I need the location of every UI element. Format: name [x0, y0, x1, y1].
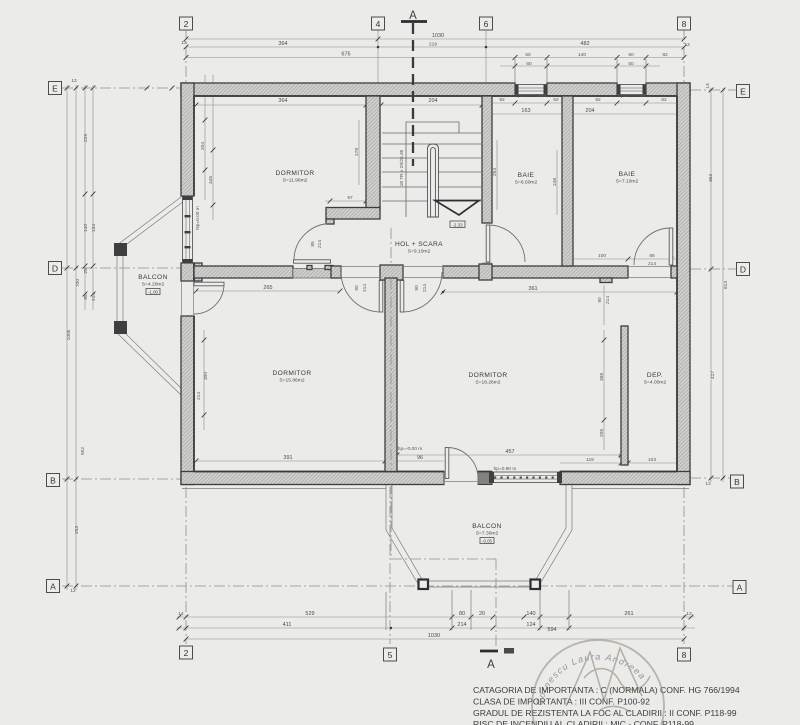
svg-text:552: 552 — [80, 447, 86, 455]
svg-text:S=15.86m2: S=15.86m2 — [279, 378, 304, 384]
svg-text:2: 2 — [184, 648, 189, 658]
svg-text:163: 163 — [521, 108, 530, 114]
svg-text:140: 140 — [578, 52, 586, 58]
svg-text:214: 214 — [422, 284, 428, 292]
svg-text:214: 214 — [196, 392, 202, 400]
svg-text:134: 134 — [91, 224, 97, 232]
svg-text:254: 254 — [492, 168, 498, 176]
svg-text:300: 300 — [203, 372, 209, 380]
svg-text:D: D — [740, 265, 746, 275]
svg-text:214: 214 — [362, 284, 368, 292]
svg-text:278: 278 — [354, 148, 360, 156]
svg-text:214: 214 — [317, 240, 323, 248]
svg-text:20: 20 — [479, 611, 485, 617]
svg-text:S=9.10m2: S=9.10m2 — [408, 249, 431, 255]
svg-text:1030: 1030 — [432, 33, 444, 39]
svg-text:A: A — [50, 582, 56, 592]
svg-text:BAIE: BAIE — [518, 172, 535, 179]
svg-text:A: A — [737, 583, 743, 593]
svg-text:-0.05: -0.05 — [482, 538, 492, 543]
svg-text:391: 391 — [283, 455, 292, 461]
svg-text:90: 90 — [597, 297, 603, 303]
svg-text:A: A — [487, 659, 495, 671]
svg-text:594: 594 — [547, 627, 556, 633]
svg-text:S=18.26m2: S=18.26m2 — [475, 380, 500, 386]
svg-text:364: 364 — [278, 98, 287, 104]
svg-text:13: 13 — [686, 611, 692, 617]
svg-text:8: 8 — [682, 19, 687, 29]
svg-text:S=6.60m2: S=6.60m2 — [515, 180, 538, 186]
svg-text:675: 675 — [341, 52, 350, 58]
svg-text:BALCON: BALCON — [472, 523, 502, 530]
svg-text:60: 60 — [628, 52, 634, 58]
svg-text:E: E — [52, 84, 58, 94]
svg-text:361: 361 — [528, 286, 537, 292]
svg-text:DORMITOR: DORMITOR — [276, 170, 315, 177]
svg-text:HOL + SCARA: HOL + SCARA — [395, 241, 443, 248]
svg-text:hp=-0.00 m: hp=-0.00 m — [398, 446, 422, 452]
svg-text:398: 398 — [599, 373, 605, 381]
svg-text:97: 97 — [347, 195, 353, 201]
svg-text:80: 80 — [459, 611, 465, 617]
svg-text:363: 363 — [708, 174, 714, 182]
svg-text:B: B — [734, 477, 740, 487]
svg-text:12: 12 — [70, 588, 76, 594]
svg-text:248: 248 — [552, 178, 558, 186]
svg-text:60: 60 — [526, 61, 532, 67]
svg-text:60: 60 — [628, 61, 634, 67]
svg-text:8: 8 — [682, 650, 687, 660]
svg-text:-1.00: -1.00 — [148, 289, 158, 294]
svg-text:14: 14 — [178, 611, 184, 617]
svg-text:D: D — [52, 264, 58, 274]
svg-text:140: 140 — [526, 611, 535, 617]
svg-text:214: 214 — [648, 261, 656, 267]
svg-text:6: 6 — [484, 19, 489, 29]
svg-text:96: 96 — [417, 455, 423, 461]
svg-text:529: 529 — [305, 611, 314, 617]
svg-text:2: 2 — [184, 19, 189, 29]
svg-text:18 TR x 29/26.35: 18 TR x 29/26.35 — [399, 149, 405, 186]
svg-text:85: 85 — [310, 241, 316, 247]
svg-text:482: 482 — [580, 41, 589, 47]
svg-text:204: 204 — [585, 108, 594, 114]
svg-text:BALCON: BALCON — [138, 274, 168, 281]
svg-text:85: 85 — [649, 253, 655, 259]
svg-text:13: 13 — [71, 78, 77, 84]
svg-text:1005: 1005 — [66, 329, 72, 340]
svg-text:Np=0.00 m: Np=0.00 m — [195, 206, 201, 230]
svg-text:1030: 1030 — [428, 633, 440, 639]
svg-text:813: 813 — [723, 281, 729, 289]
svg-text:457: 457 — [505, 449, 514, 455]
svg-text:S=4.00m2: S=4.00m2 — [644, 380, 667, 386]
svg-text:DEP.: DEP. — [647, 372, 663, 379]
svg-text:S=4.20m2: S=4.20m2 — [142, 282, 165, 288]
svg-text:219: 219 — [429, 42, 437, 48]
svg-text:62: 62 — [661, 97, 667, 103]
svg-text:E: E — [740, 87, 746, 97]
svg-text:13: 13 — [705, 83, 711, 89]
svg-text:82: 82 — [662, 52, 668, 58]
svg-text:B: B — [50, 476, 56, 486]
svg-text:82: 82 — [595, 97, 601, 103]
svg-text:BAIE: BAIE — [619, 171, 636, 178]
svg-text:13: 13 — [705, 481, 711, 487]
svg-text:hp=0.90 m: hp=0.90 m — [494, 466, 517, 472]
svg-text:204: 204 — [428, 98, 437, 104]
svg-text:214: 214 — [457, 622, 466, 628]
svg-text:4: 4 — [376, 19, 381, 29]
svg-text:229: 229 — [83, 134, 89, 142]
svg-text:CLASA DE IMPORTANTA : III CONF: CLASA DE IMPORTANTA : III CONF. P100-92 — [473, 697, 650, 707]
svg-text:13: 13 — [684, 42, 690, 48]
svg-text:5: 5 — [388, 650, 393, 660]
svg-text:700: 700 — [75, 279, 81, 287]
svg-text:DORMITOR: DORMITOR — [273, 370, 312, 377]
svg-text:124: 124 — [526, 622, 535, 628]
svg-text:253: 253 — [74, 526, 80, 534]
svg-text:DORMITOR: DORMITOR — [469, 372, 508, 379]
svg-text:S=7.30m2: S=7.30m2 — [476, 531, 499, 537]
svg-text:345: 345 — [208, 176, 214, 184]
svg-text:85: 85 — [83, 294, 89, 300]
svg-text:214: 214 — [605, 296, 611, 304]
svg-text:S=11.98m2: S=11.98m2 — [283, 178, 308, 184]
svg-text:90: 90 — [414, 285, 420, 291]
svg-text:S=7.10m2: S=7.10m2 — [616, 179, 639, 185]
svg-text:13: 13 — [181, 40, 187, 46]
svg-text:364: 364 — [278, 41, 287, 47]
svg-text:-2.33: -2.33 — [452, 222, 463, 227]
svg-text:25: 25 — [83, 268, 89, 274]
svg-text:204: 204 — [200, 142, 206, 150]
svg-text:411: 411 — [283, 622, 292, 628]
svg-text:100: 100 — [598, 253, 606, 259]
svg-text:119: 119 — [586, 457, 594, 463]
svg-text:52: 52 — [553, 97, 559, 103]
svg-text:GRADUL DE REZISTENTA LA FOC AL: GRADUL DE REZISTENTA LA FOC AL CLADIRII … — [473, 708, 737, 718]
svg-text:90: 90 — [354, 285, 360, 291]
svg-text:261: 261 — [624, 611, 633, 617]
svg-text:209: 209 — [599, 429, 605, 437]
svg-text:265: 265 — [263, 285, 272, 291]
svg-text:60: 60 — [525, 52, 531, 58]
svg-text:103: 103 — [648, 457, 656, 463]
svg-text:214: 214 — [91, 293, 97, 301]
svg-text:427: 427 — [710, 371, 716, 379]
svg-text:92: 92 — [499, 97, 505, 103]
svg-text:140: 140 — [83, 224, 89, 232]
